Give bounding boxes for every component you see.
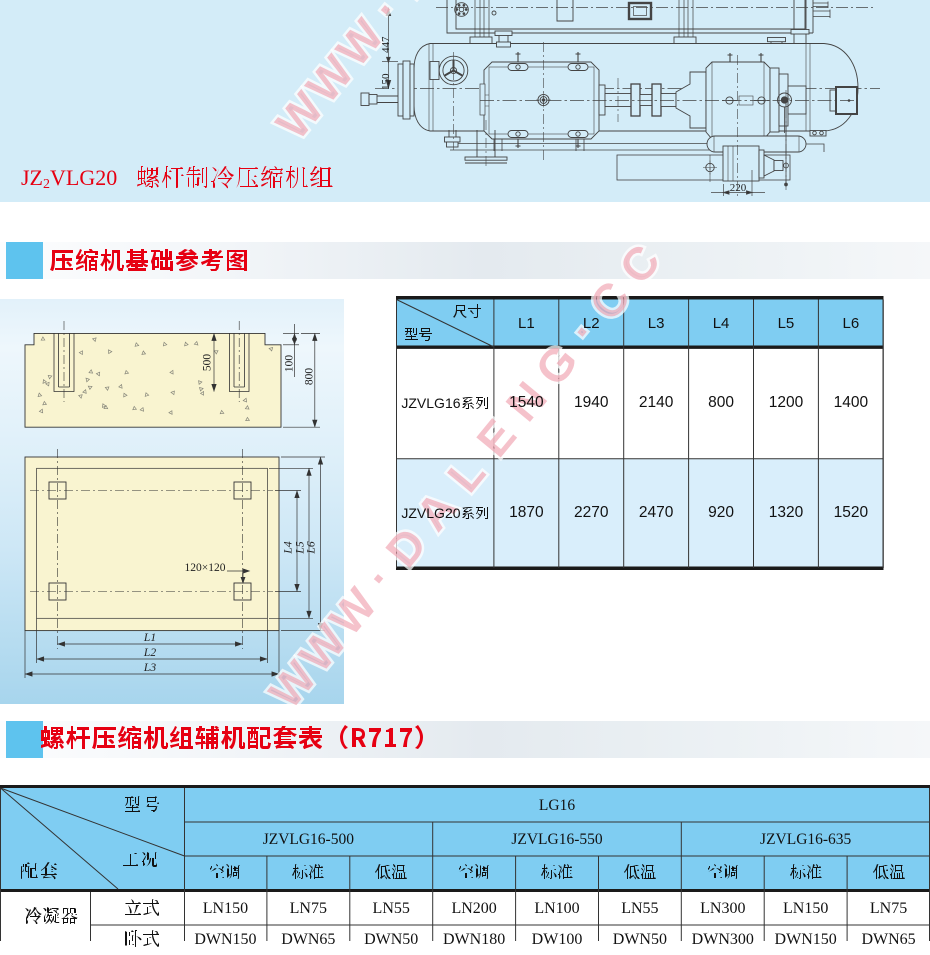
svg-text:.: . <box>345 549 393 592</box>
